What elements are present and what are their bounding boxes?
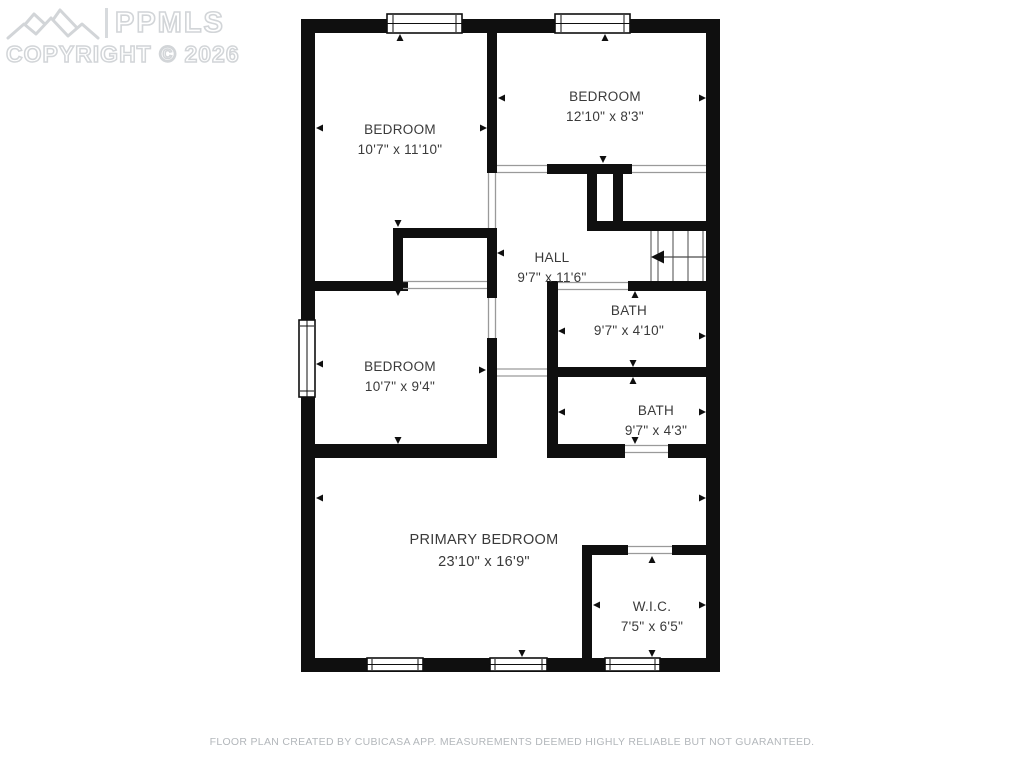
room-dimensions: 10'7" x 9'4" [364,377,436,397]
door-opening [628,547,672,554]
dimension-arrow-icon [699,95,706,102]
wall-closet [487,228,497,292]
dimension-arrow-icon [699,495,706,502]
dimension-arrow-icon [593,602,600,609]
window [490,658,547,671]
room-label-primary-bedroom: PRIMARY BEDROOM 23'10" x 16'9" [410,529,559,573]
exterior-walls [301,19,720,672]
room-label-bedroom-top-right: BEDROOM 12'10" x 8'3" [566,87,644,127]
window [367,658,423,671]
dimension-arrow-icon [316,361,323,368]
wall [587,221,720,231]
wall-closet [393,228,497,238]
door-opening [489,298,496,338]
room-label-bedroom-top-left: BEDROOM 10'7" x 11'10" [358,120,443,160]
window [555,14,630,33]
dimension-arrow-icon [602,34,609,41]
room-name: BATH [594,301,664,321]
dimension-arrow-icon [699,409,706,416]
door-opening [403,282,487,289]
dimension-arrow-icon [649,650,656,657]
wall [487,33,497,173]
room-dimensions: 23'10" x 16'9" [410,551,559,573]
window [299,320,315,397]
floor-plan-page: PPMLS COPYRIGHT © 2026 [0,0,1024,767]
wall [668,444,720,458]
window [387,14,462,33]
dimension-arrow-icon [630,377,637,384]
room-label-bedroom-middle-left: BEDROOM 10'7" x 9'4" [364,357,436,397]
dimension-arrow-icon [632,291,639,298]
wall-closet [393,228,403,288]
dimension-arrow-icon [480,125,487,132]
room-name: BATH [625,401,687,421]
dimension-arrow-icon [316,495,323,502]
dimension-arrow-icon [395,437,402,444]
dimension-arrow-icon [600,156,607,163]
door-opening [632,166,706,173]
dimension-arrow-icon [558,328,565,335]
wall [487,338,497,458]
wall-wic [582,545,628,555]
door-opening [497,166,547,173]
dimension-arrow-icon [699,602,706,609]
wall-wic [582,545,592,672]
window [605,658,660,671]
dimension-arrow-icon [497,250,504,257]
dimension-arrow-icon [519,650,526,657]
room-name: W.I.C. [621,597,683,617]
wall [706,19,720,672]
dimension-arrow-icon [397,34,404,41]
wall [587,173,597,223]
dimension-arrow-icon [395,289,402,296]
room-label-bath-lower: BATH 9'7" x 4'3" [625,401,687,441]
wall [613,173,623,223]
dimension-arrow-icon [498,95,505,102]
dimension-arrow-icon [558,409,565,416]
door-opening [497,369,547,376]
door-opening [625,446,668,453]
dimension-arrow-icon [649,556,656,563]
wall [487,292,497,298]
wall [558,367,720,377]
room-label-bath-upper: BATH 9'7" x 4'10" [594,301,664,341]
wall [628,281,720,291]
room-dimensions: 9'7" x 4'10" [594,321,664,341]
wall-wic [672,545,720,555]
dimension-arrow-icon [699,333,706,340]
dimension-arrow-icon [630,360,637,367]
dimension-arrow-icon [316,125,323,132]
room-dimensions: 9'7" x 11'6" [517,268,586,288]
room-name: HALL [517,248,586,268]
footer-disclaimer: FLOOR PLAN CREATED BY CUBICASA APP. MEAS… [0,736,1024,748]
floor-plan-drawing [0,0,1024,767]
room-name: BEDROOM [364,357,436,377]
dimension-arrow-icon [395,220,402,227]
room-name: PRIMARY BEDROOM [410,529,559,551]
staircase [651,231,706,281]
wall [301,281,408,291]
dimension-arrow-icon [479,367,486,374]
wall [547,164,632,174]
room-dimensions: 10'7" x 11'10" [358,140,443,160]
wall [301,444,492,458]
room-label-hall: HALL 9'7" x 11'6" [517,248,586,288]
door-opening [489,173,496,228]
room-dimensions: 7'5" x 6'5" [621,617,683,637]
room-dimensions: 9'7" x 4'3" [625,421,687,441]
room-name: BEDROOM [358,120,443,140]
room-name: BEDROOM [566,87,644,107]
wall [547,281,558,458]
wall [301,19,720,33]
room-label-walk-in-closet: W.I.C. 7'5" x 6'5" [621,597,683,637]
room-dimensions: 12'10" x 8'3" [566,107,644,127]
wall [547,444,625,458]
